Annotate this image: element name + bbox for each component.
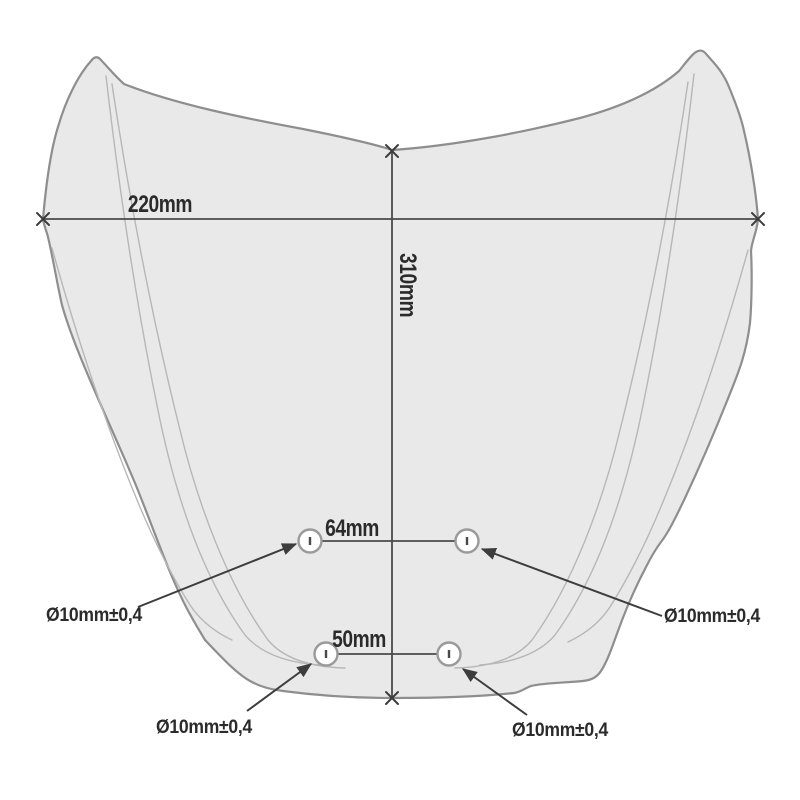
upper-spacing-label: 64mm [325,514,379,542]
hole-diameter-label-mid-left: Ø10mm±0,4 [46,603,143,625]
lower-spacing-label: 50mm [332,625,386,653]
hole-diameter-label-mid-right: Ø10mm±0,4 [664,604,761,626]
height-label: 310mm [394,253,422,317]
hole-diameter-label-bottom-right: Ø10mm±0,4 [512,718,609,740]
hole-diameter-label-bottom-left: Ø10mm±0,4 [156,715,253,737]
diagram-page: 220mm 310mm 64mm 50mm [0,0,800,800]
width-label: 220mm [128,190,192,218]
windscreen-dimension-diagram: 220mm 310mm 64mm 50mm [0,0,800,800]
